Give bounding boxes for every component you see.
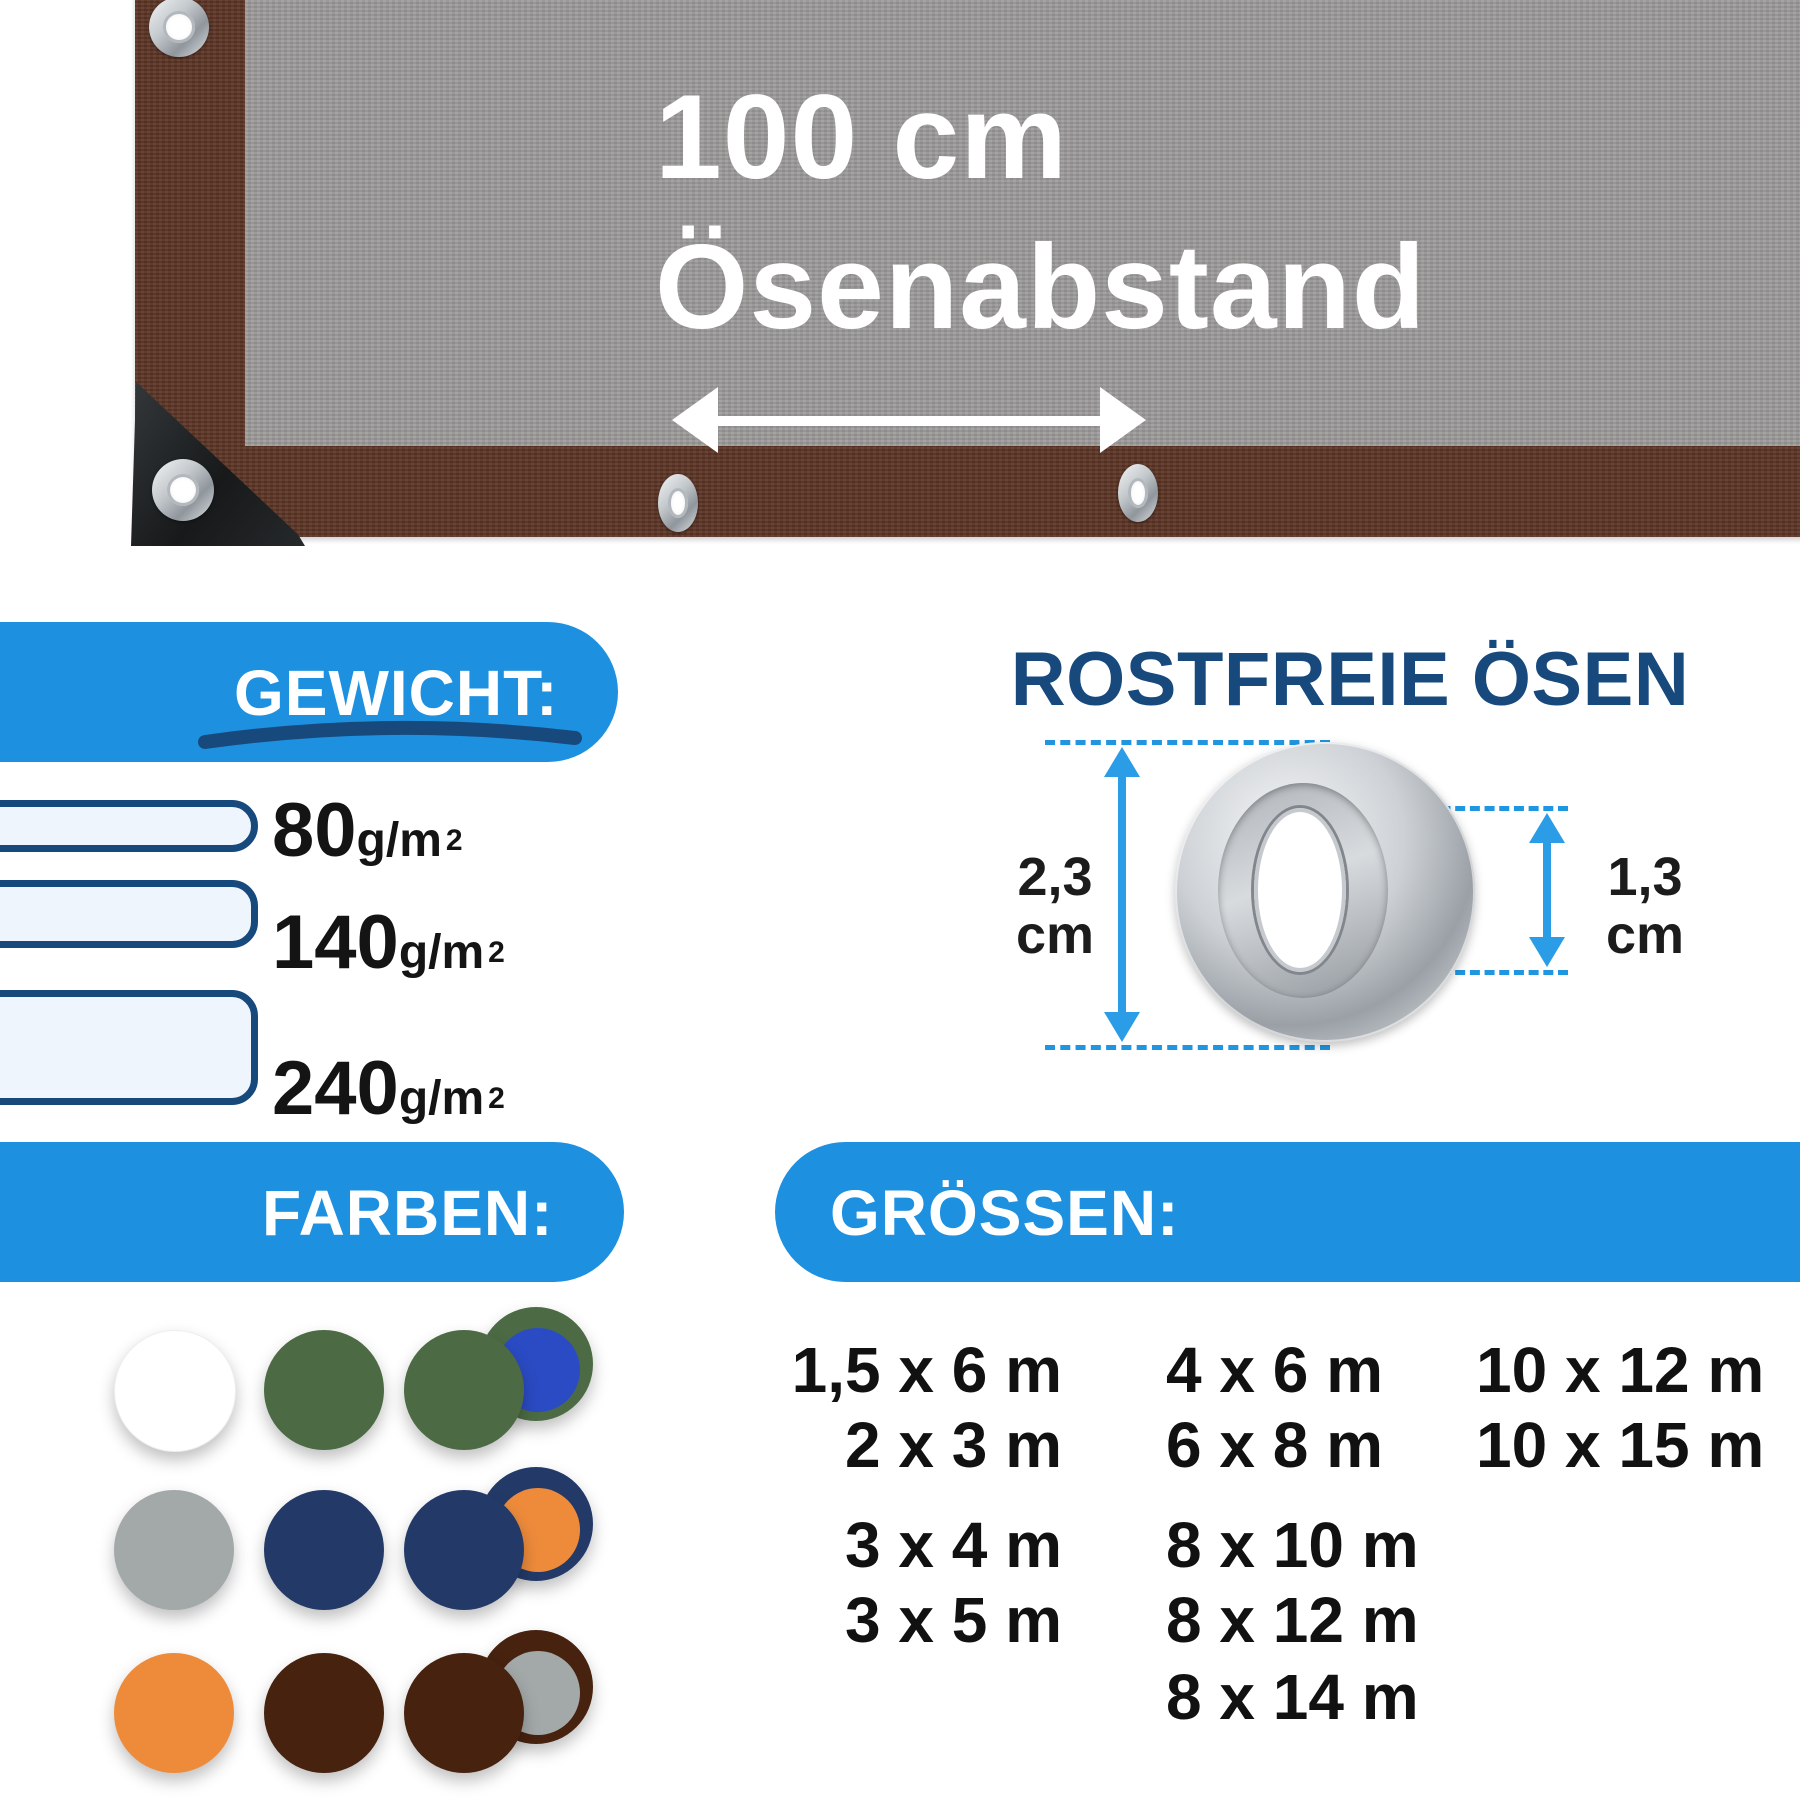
- size-item: 6 x 8 m: [1166, 1409, 1383, 1481]
- size-item: 8 x 12 m: [1166, 1584, 1419, 1656]
- swatch-braun: [264, 1653, 384, 1773]
- weight-value-140: 140g/m2: [272, 899, 501, 986]
- measure-arrow-inner-icon: [1529, 813, 1565, 967]
- sizes-title: GRÖSSEN:: [830, 1176, 1179, 1250]
- weight-unit: g/m: [399, 1071, 484, 1126]
- size-item: 3 x 4 m: [700, 1509, 1062, 1581]
- eyelet-hole: [163, 11, 194, 42]
- product-infographic: 100 cm Ösenabstand GEWICHT: 80g/m2 140g/…: [0, 0, 1800, 1800]
- size-item: 10 x 12 m: [1476, 1334, 1764, 1406]
- eyelet-photo-icon: [1175, 742, 1475, 1042]
- weight-number: 80: [272, 787, 357, 874]
- weight-bar-240: [0, 990, 258, 1105]
- eyelet-corner-icon: [152, 459, 214, 521]
- weight-unit-sup: 2: [446, 824, 463, 858]
- swatch-grau: [114, 1490, 234, 1610]
- weight-bar-140: [0, 880, 258, 948]
- swatch-marineblau: [264, 1490, 384, 1610]
- eyelet-hole: [1128, 478, 1149, 508]
- eyelet-hole: [1254, 808, 1346, 972]
- eyelet-bottom-right-icon: [1118, 464, 1158, 522]
- swatch-orange: [114, 1653, 234, 1773]
- size-item: 8 x 10 m: [1166, 1509, 1419, 1581]
- swatch-weiss: [114, 1330, 236, 1452]
- weight-value-240: 240g/m2: [272, 1045, 501, 1132]
- distance-value: 100 cm: [655, 70, 1068, 204]
- swatch-marine-orange: [404, 1490, 524, 1610]
- size-item: 4 x 6 m: [1166, 1334, 1383, 1406]
- outer-unit: cm: [1016, 905, 1094, 965]
- swatch-gruen: [264, 1330, 384, 1450]
- eyelet-hole: [167, 474, 199, 506]
- inner-measure-label: 1,3 cm: [1575, 848, 1715, 964]
- eyelet-hole: [668, 488, 689, 518]
- double-arrow-icon: [706, 416, 1112, 426]
- arrow-right-head-icon: [1100, 387, 1146, 453]
- eyelet-distance-label: 100 cm Ösenabstand: [655, 62, 1426, 362]
- weight-value-80: 80g/m2: [272, 787, 459, 874]
- weight-bar-80: [0, 800, 258, 852]
- weight-unit-sup: 2: [488, 936, 505, 970]
- eyelet-bottom-left-icon: [658, 474, 698, 532]
- dashed-line: [1045, 740, 1330, 745]
- colors-title: FARBEN:: [262, 1176, 553, 1250]
- inner-value: 1,3: [1607, 847, 1682, 907]
- weight-unit-sup: 2: [488, 1082, 505, 1116]
- size-item: 3 x 5 m: [700, 1584, 1062, 1656]
- weight-number: 240: [272, 1045, 399, 1132]
- size-item: 8 x 14 m: [1166, 1661, 1419, 1733]
- underline-swoosh-icon: [195, 712, 585, 758]
- outer-measure-label: 2,3 cm: [985, 848, 1125, 964]
- weight-unit: g/m: [399, 925, 484, 980]
- swatch-braun-grau: [404, 1653, 524, 1773]
- size-item: 2 x 3 m: [700, 1409, 1062, 1481]
- size-item: 1,5 x 6 m: [700, 1334, 1062, 1406]
- weight-number: 140: [272, 899, 399, 986]
- distance-word: Ösenabstand: [655, 220, 1426, 354]
- arrow-left-head-icon: [672, 387, 718, 453]
- inner-unit: cm: [1606, 905, 1684, 965]
- weight-unit: g/m: [357, 813, 442, 868]
- outer-value: 2,3: [1017, 847, 1092, 907]
- swatch-gruen-blau: [404, 1330, 524, 1450]
- size-item: 10 x 15 m: [1476, 1409, 1764, 1481]
- dashed-line: [1045, 1045, 1330, 1050]
- eyelet-section-title: ROSTFREIE ÖSEN: [1000, 636, 1700, 723]
